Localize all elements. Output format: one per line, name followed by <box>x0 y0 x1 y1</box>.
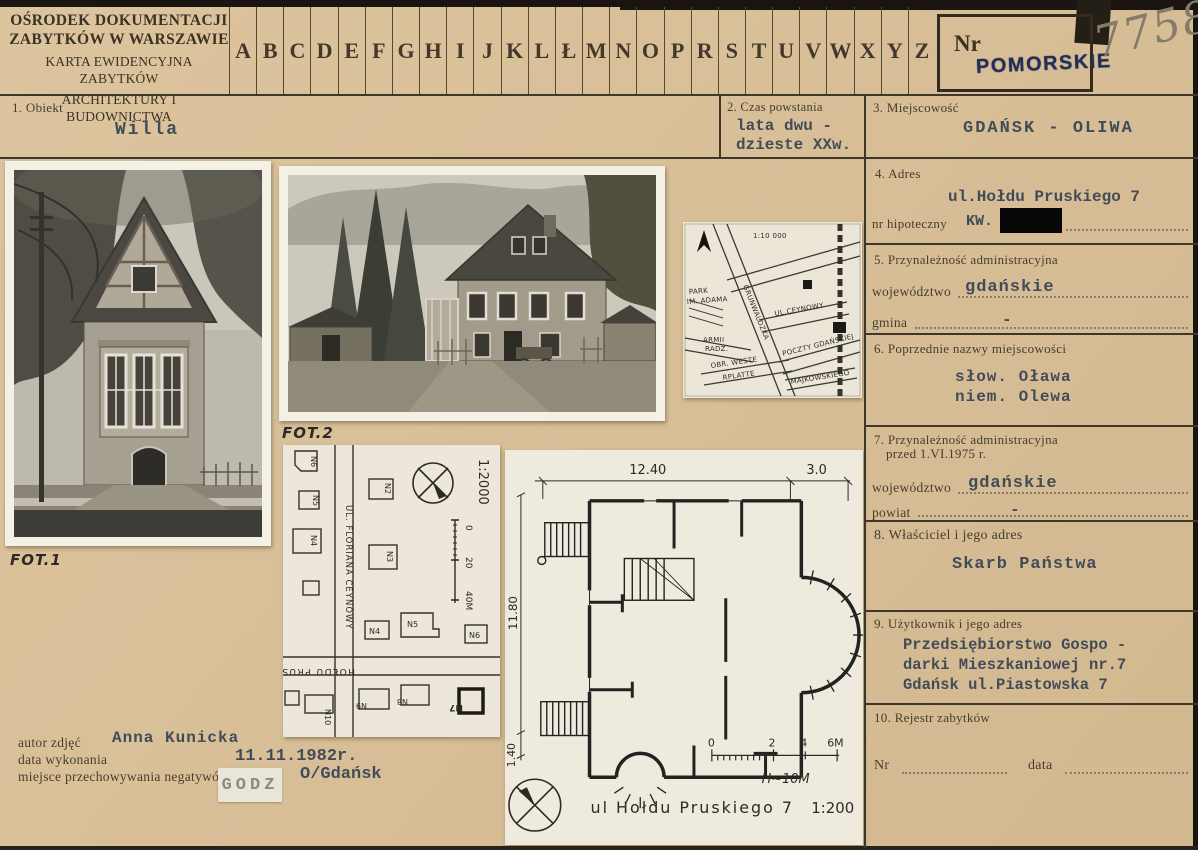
card-type-line1: KARTA EWIDENCYJNA ZABYTKÓW <box>8 53 230 88</box>
card-number-box: Nr POMORSKIE <box>937 14 1093 92</box>
field8-label: 8. Właściciel i jego adres <box>874 528 1023 544</box>
photo-1 <box>5 161 271 546</box>
house-n7-subject: N7 <box>449 702 463 712</box>
street-floriana-ceynowy: UL. FLORIANA CEYNOWY <box>343 505 353 630</box>
field10-data-label: data <box>1028 758 1053 774</box>
photo-1-villa-front-illustration <box>14 170 262 537</box>
alphabet-letter-e: E <box>338 7 365 95</box>
plan-scale: 1:200 <box>811 799 854 817</box>
field7-row1-dots <box>958 492 1188 494</box>
field5-row1-label: województwo <box>872 284 951 300</box>
alphabet-letter-s: S <box>718 7 745 95</box>
alphabet-letter-x: X <box>854 7 881 95</box>
voivodeship-stamp: POMORSKIE <box>976 50 1113 79</box>
label-armii-line2: RADZ. <box>705 345 728 353</box>
alphabet-index-strip: ABCDEFGHIJKLŁMNOPRSTUVWXYZ <box>229 7 935 95</box>
plan-caption: ul Hołdu Pruskiego 7 <box>591 798 794 817</box>
rule-f6-bottom <box>866 425 1198 427</box>
field6-value-line1: słow. Oława <box>955 368 1072 386</box>
institution-name-line2: ZABYTKÓW W WARSZAWIE <box>8 30 230 49</box>
location-map-scale: 1:10 000 <box>753 232 787 240</box>
alphabet-letter-i: I <box>446 7 473 95</box>
heritage-record-card: OŚRODEK DOKUMENTACJI ZABYTKÓW W WARSZAWI… <box>0 0 1198 850</box>
house-n8: N8 <box>397 697 408 706</box>
alphabet-letter-f: F <box>365 7 392 95</box>
date-label: data wykonania <box>18 752 107 768</box>
field5-row1-dots <box>958 296 1188 298</box>
negatives-label: miejsce przechowywania negatywów <box>18 769 229 785</box>
rule-row1-bottom <box>0 157 1198 159</box>
nr-label: Nr <box>954 31 981 57</box>
alphabet-letter-y: Y <box>881 7 908 95</box>
house-n3: N3 <box>385 551 394 562</box>
plan-scale-tick-2: 2 <box>769 736 776 749</box>
vline-field1-field2 <box>719 95 721 158</box>
field7-row1-value: gdańskie <box>968 474 1058 493</box>
rule-f7-bottom <box>866 520 1198 522</box>
field2-value-line1: lata dwu - <box>736 117 832 135</box>
house-row-n6: N6 <box>469 631 480 640</box>
alphabet-letter-v: V <box>799 7 826 95</box>
house-row-n5: N5 <box>407 620 418 629</box>
author-label: autor zdjęć <box>18 735 81 751</box>
author-value: Anna Kunicka <box>112 729 239 747</box>
alphabet-letter-u: U <box>772 7 799 95</box>
alphabet-letter-t: T <box>745 7 772 95</box>
plan-scale-tick-4: 4 <box>800 736 807 749</box>
godz-stamp-slip: GODZ <box>218 768 282 802</box>
field4-dotted-line <box>1066 229 1188 231</box>
site-map-scale: 1:2000 <box>475 459 490 505</box>
alphabet-letter-h: H <box>419 7 446 95</box>
scan-edge-bottom <box>0 846 1198 850</box>
alphabet-letter-n: N <box>609 7 636 95</box>
alphabet-letter-k: K <box>501 7 528 95</box>
field6-value-line2: niem. Olewa <box>955 388 1072 406</box>
field10-nr-dots <box>902 772 1007 774</box>
field5-row1-value: gdańskie <box>965 278 1055 297</box>
site-scale-tick-40: 40M <box>463 591 473 610</box>
alphabet-letter-p: P <box>664 7 691 95</box>
field2-value-line2: dzieste XXw. <box>736 136 851 154</box>
site-scale-tick-20: 20 <box>463 557 473 569</box>
field5-row2-dots <box>915 327 1188 329</box>
date-value: 11.11.1982r. <box>235 747 357 766</box>
plan-scale-tick-6: 6M <box>827 736 843 749</box>
field7-label-line2: przed 1.VI.1975 r. <box>886 446 986 462</box>
house-row-n4: N4 <box>369 627 380 636</box>
label-armii-line1: ARMII <box>703 336 724 344</box>
godz-stamp-text: GODZ <box>222 776 279 795</box>
field4-label: 4. Adres <box>875 166 921 182</box>
field9-value-line3: Gdańsk ul.Piastowska 7 <box>903 676 1108 694</box>
institution-name-line1: OŚRODEK DOKUMENTACJI <box>8 11 230 30</box>
site-map: 1:2000 0 20 40M UL. FLORIANA CEYNOWY HOŁ… <box>283 445 500 737</box>
field5-label: 5. Przynależność administracyjna <box>874 252 1058 268</box>
alphabet-letter-g: G <box>392 7 419 95</box>
dim-width: 12.40 <box>629 463 666 478</box>
house-n4: N4 <box>309 535 318 546</box>
photo-1-caption: FOT.1 <box>10 551 62 569</box>
dim-height: 11.80 <box>506 596 520 630</box>
field8-value: Skarb Państwa <box>952 555 1098 574</box>
field4-sub-value: KW. <box>966 213 993 230</box>
field7-row2-label: powiat <box>872 505 911 521</box>
field9-label: 9. Użytkownik i jego adres <box>874 616 1022 632</box>
alphabet-letter-d: D <box>310 7 337 95</box>
rule-f9-bottom <box>866 703 1198 705</box>
house-n2: N2 <box>383 483 392 494</box>
rule-f8-bottom <box>866 610 1198 612</box>
field3-label: 3. Miejscowość <box>873 100 959 116</box>
floor-plan: 12.40 3.0 11.80 1.40 <box>505 450 863 845</box>
field9-value-line1: Przedsiębiorstwo Gospo - <box>903 636 1126 654</box>
field1-label: 1. Obiekt <box>12 100 63 116</box>
field7-row2-dots <box>918 515 1188 517</box>
rule-f5-bottom <box>866 333 1198 335</box>
negatives-value: O/Gdańsk <box>300 765 382 784</box>
alphabet-letter-c: C <box>283 7 310 95</box>
alphabet-letter-j: J <box>473 7 500 95</box>
field2-label: 2. Czas powstania <box>727 100 823 115</box>
location-map: 1:10 000 PARK IM. ADAMA GRUNWALDZKA UL.C… <box>683 222 862 398</box>
field4-value: ul.Hołdu Pruskiego 7 <box>948 188 1140 206</box>
field5-row2-label: gmina <box>872 315 907 331</box>
site-scale-tick-0: 0 <box>463 525 473 531</box>
photo-2-villa-garden-illustration <box>288 175 656 412</box>
house-n5: N5 <box>311 495 320 506</box>
rule-f4-bottom <box>866 243 1198 245</box>
street-holdu-pruskiego: HOŁDU PRUSKIEGO <box>283 666 355 676</box>
alphabet-letter-r: R <box>691 7 718 95</box>
alphabet-letter-l: L <box>528 7 555 95</box>
plan-scale-tick-0: 0 <box>708 736 715 749</box>
dim-porch: 1.40 <box>505 743 518 767</box>
label-park-line1: PARK <box>689 287 709 296</box>
alphabet-letter-a: A <box>229 7 256 95</box>
field6-label: 6. Poprzednie nazwy miejscowości <box>874 341 1066 357</box>
site-map-drawing: 1:2000 0 20 40M UL. FLORIANA CEYNOWY HOŁ… <box>283 445 500 737</box>
redacted-kw-number <box>1000 208 1062 233</box>
rule-header-bottom <box>0 94 1198 96</box>
field10-nr-label: Nr <box>874 758 889 774</box>
field3-value: GDAŃSK - OLIWA <box>963 119 1134 138</box>
location-map-drawing: 1:10 000 PARK IM. ADAMA GRUNWALDZKA UL.C… <box>683 222 862 398</box>
field9-value-line2: darki Mieszkaniowej nr.7 <box>903 656 1126 674</box>
plan-height-note: H~10M <box>762 772 810 787</box>
house-n6: N6 <box>309 456 318 467</box>
alphabet-letter-z: Z <box>908 7 935 95</box>
alphabet-letter-b: B <box>256 7 283 95</box>
field7-row1-label: województwo <box>872 480 951 496</box>
house-n9: N9 <box>356 701 367 710</box>
alphabet-letter-m: M <box>582 7 609 95</box>
field1-value: Willa <box>115 120 179 140</box>
house-n10: N10 <box>323 709 332 725</box>
field10-label: 10. Rejestr zabytków <box>874 710 990 726</box>
photo-2 <box>279 166 665 421</box>
alphabet-letter-ł: Ł <box>555 7 582 95</box>
field10-data-dots <box>1065 772 1188 774</box>
floor-plan-drawing: 12.40 3.0 11.80 1.40 <box>505 450 863 845</box>
photo-2-caption: FOT.2 <box>282 424 334 442</box>
alphabet-letter-w: W <box>826 7 853 95</box>
dim-right-wing: 3.0 <box>806 463 827 478</box>
field4-sub-label: nr hipoteczny <box>872 216 947 232</box>
vline-right-column <box>864 95 866 848</box>
alphabet-letter-o: O <box>636 7 663 95</box>
